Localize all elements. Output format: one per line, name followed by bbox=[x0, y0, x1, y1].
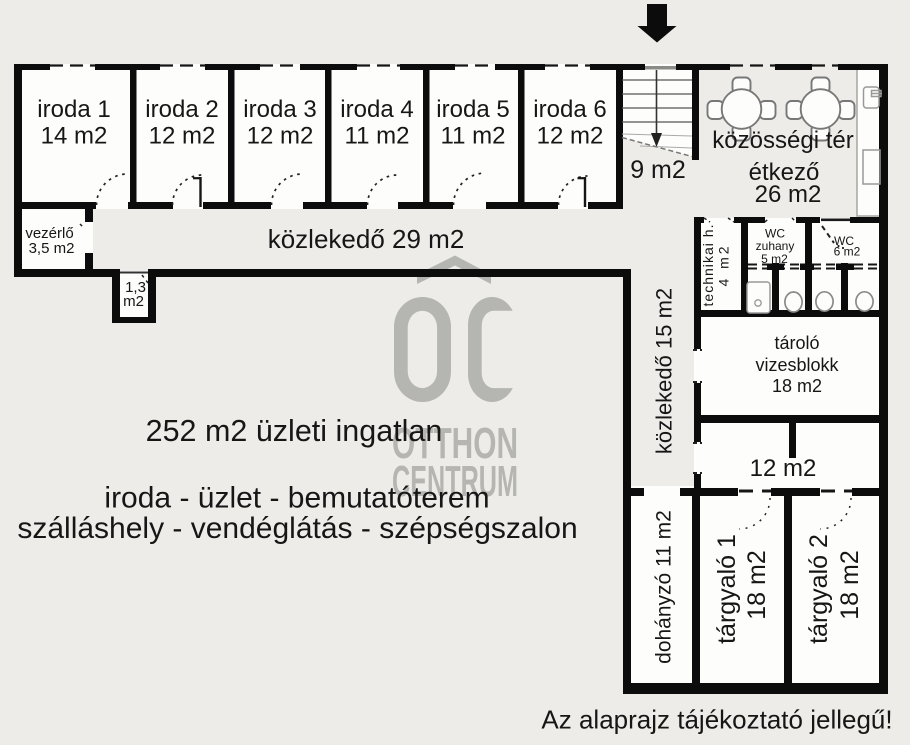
svg-text:iroda - üzlet - bemutatóterem: iroda - üzlet - bemutatóterem bbox=[104, 482, 489, 515]
svg-text:iroda 5: iroda 5 bbox=[436, 96, 509, 123]
svg-text:közlekedő 15 m2: közlekedő 15 m2 bbox=[652, 288, 677, 454]
svg-text:12 m2: 12 m2 bbox=[149, 123, 216, 150]
svg-text:tárgyaló 2: tárgyaló 2 bbox=[805, 534, 833, 644]
svg-text:tárgyaló 1: tárgyaló 1 bbox=[713, 534, 741, 644]
svg-text:14 m2: 14 m2 bbox=[41, 123, 108, 150]
svg-text:5 m2: 5 m2 bbox=[761, 252, 788, 266]
svg-text:252 m2 üzleti ingatlan: 252 m2 üzleti ingatlan bbox=[146, 414, 443, 448]
svg-text:12 m2: 12 m2 bbox=[247, 123, 314, 150]
svg-text:18 m2: 18 m2 bbox=[836, 550, 864, 619]
svg-text:tároló: tároló bbox=[774, 333, 819, 353]
svg-text:iroda 2: iroda 2 bbox=[145, 96, 218, 123]
svg-text:9 m2: 9 m2 bbox=[630, 156, 686, 184]
svg-text:12 m2: 12 m2 bbox=[537, 123, 604, 150]
svg-text:iroda 1: iroda 1 bbox=[37, 96, 110, 123]
svg-text:11 m2: 11 m2 bbox=[345, 123, 410, 150]
svg-text:technikai h.: technikai h. bbox=[700, 225, 716, 307]
svg-text:4 m2: 4 m2 bbox=[716, 246, 732, 286]
svg-text:közlekedő 29 m2: közlekedő 29 m2 bbox=[268, 224, 465, 254]
svg-text:Az alaprajz tájékoztató jelleg: Az alaprajz tájékoztató jellegű! bbox=[541, 705, 892, 735]
svg-text:szálláshely - vendéglátás - sz: szálláshely - vendéglátás - szépségszalo… bbox=[17, 512, 577, 545]
svg-text:m2: m2 bbox=[123, 293, 144, 310]
svg-text:zuhany: zuhany bbox=[756, 239, 795, 253]
svg-text:11 m2: 11 m2 bbox=[441, 123, 506, 150]
svg-text:18 m2: 18 m2 bbox=[772, 376, 822, 396]
svg-text:6 m2: 6 m2 bbox=[834, 245, 861, 259]
svg-text:3,5 m2: 3,5 m2 bbox=[29, 240, 75, 257]
svg-text:18 m2: 18 m2 bbox=[743, 550, 771, 619]
svg-text:iroda 4: iroda 4 bbox=[340, 96, 413, 123]
svg-text:12 m2: 12 m2 bbox=[750, 455, 817, 482]
svg-text:vizesblokk: vizesblokk bbox=[755, 355, 839, 375]
svg-text:iroda 6: iroda 6 bbox=[533, 96, 606, 123]
svg-text:dohányzó 11 m2: dohányzó 11 m2 bbox=[653, 510, 676, 664]
svg-text:26 m2: 26 m2 bbox=[755, 181, 822, 208]
svg-text:közösségi tér: közösségi tér bbox=[712, 127, 853, 154]
svg-text:iroda 3: iroda 3 bbox=[243, 96, 316, 123]
